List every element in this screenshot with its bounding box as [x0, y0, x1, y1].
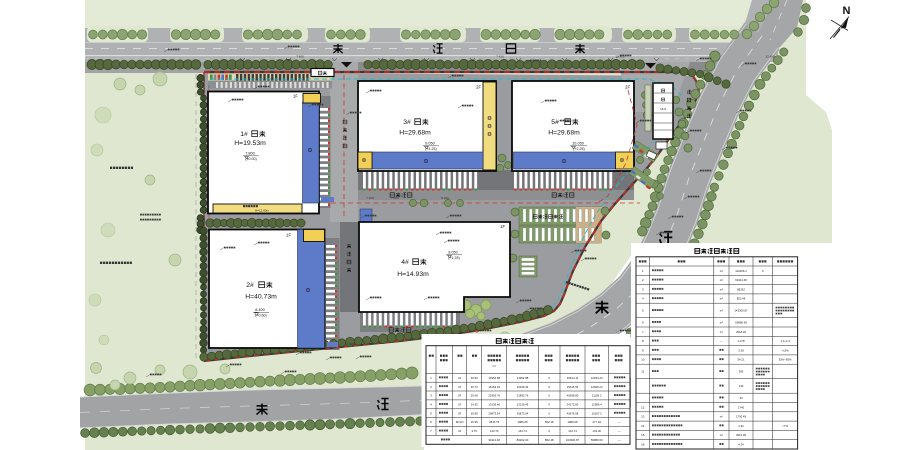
svg-text:90114.48: 90114.48: [735, 278, 747, 282]
svg-text:29.68: 29.68: [471, 394, 478, 398]
svg-text:24172.80: 24172.80: [567, 403, 579, 407]
svg-text:90114.48: 90114.48: [488, 438, 500, 442]
svg-text:6F/1D: 6F/1D: [456, 420, 464, 424]
svg-text:11155.2: 11155.2: [592, 394, 602, 398]
svg-text:16: 16: [641, 443, 645, 447]
svg-text:—: —: [618, 420, 621, 424]
svg-text:H=12.00m: H=12.00m: [255, 209, 269, 213]
svg-text:m²: m²: [720, 287, 723, 291]
svg-text:54.21: 54.21: [738, 358, 745, 362]
svg-text:143.74: 143.74: [568, 429, 577, 433]
svg-text:1.92: 1.92: [738, 424, 744, 428]
svg-text:1.0~2.3: 1.0~2.3: [780, 339, 790, 343]
svg-text:19.53: 19.53: [471, 376, 478, 380]
svg-text:9.050: 9.050: [425, 142, 435, 146]
svg-text:9.050: 9.050: [448, 251, 458, 255]
svg-text:40.73: 40.73: [471, 385, 478, 389]
svg-text:12: 12: [641, 405, 645, 409]
svg-text:59880.69: 59880.69: [591, 438, 603, 442]
svg-text:133.30: 133.30: [592, 429, 601, 433]
svg-text:H=19.53m: H=19.53m: [234, 140, 266, 147]
svg-text:H=14.93m: H=14.93m: [397, 271, 429, 278]
svg-text:14952.88: 14952.88: [517, 376, 529, 380]
svg-text:21893.76: 21893.76: [517, 394, 529, 398]
svg-text:10167.2: 10167.2: [592, 411, 603, 415]
svg-text:852.48: 852.48: [737, 297, 746, 301]
svg-text:26614.11: 26614.11: [567, 376, 579, 380]
svg-text:15: 15: [641, 433, 645, 437]
svg-text:m²: m²: [720, 433, 723, 437]
svg-text:13139.46: 13139.46: [517, 403, 529, 407]
svg-text:N: N: [843, 5, 851, 17]
svg-text:7.400: 7.400: [296, 55, 304, 59]
svg-text:1F: 1F: [458, 403, 462, 407]
svg-text:383: 383: [739, 370, 744, 374]
svg-text:12.400: 12.400: [765, 55, 775, 59]
svg-text:477.94: 477.94: [592, 420, 601, 424]
svg-text:35%~65%: 35%~65%: [779, 358, 792, 362]
svg-text:H=29.68m: H=29.68m: [548, 130, 580, 137]
svg-text:1700.49: 1700.49: [736, 415, 747, 419]
svg-text:4#: 4#: [401, 259, 409, 266]
svg-text:(+2.25): (+2.25): [573, 147, 585, 151]
svg-text:7.000: 7.000: [346, 342, 354, 346]
svg-text:1F: 1F: [500, 224, 505, 229]
svg-text:852.48: 852.48: [545, 420, 554, 424]
svg-text:—: —: [618, 438, 621, 442]
svg-text:1740: 1740: [738, 405, 745, 409]
svg-text:16.95: 16.95: [471, 420, 478, 424]
svg-text:143.74: 143.74: [518, 429, 527, 433]
svg-text:m²: m²: [720, 321, 723, 325]
svg-text:13: 13: [641, 415, 645, 419]
svg-text:12946.22: 12946.22: [591, 385, 603, 389]
svg-text:1F: 1F: [293, 94, 298, 99]
svg-text:7.100: 7.100: [366, 196, 374, 200]
svg-text:m²: m²: [720, 330, 723, 334]
svg-text:3#: 3#: [403, 119, 411, 126]
svg-text:m²: m²: [720, 309, 723, 313]
svg-text:89262: 89262: [737, 287, 745, 291]
svg-text:10.050: 10.050: [572, 142, 584, 146]
svg-text:1F: 1F: [286, 233, 291, 238]
svg-text:1989.28: 1989.28: [517, 420, 528, 424]
svg-text:40676.58: 40676.58: [567, 411, 579, 415]
svg-text:7.800: 7.800: [245, 152, 255, 156]
svg-text:14.93: 14.93: [471, 403, 478, 407]
svg-text:12934.43: 12934.43: [591, 376, 603, 380]
svg-text:7.300: 7.300: [391, 196, 399, 200]
svg-text:7.410: 7.410: [496, 55, 504, 59]
svg-text:8.200: 8.200: [441, 196, 449, 200]
svg-text:33: 33: [739, 396, 743, 400]
svg-text:21893.76: 21893.76: [488, 394, 500, 398]
svg-text:3618.26: 3618.26: [736, 330, 747, 334]
svg-text:1989.28: 1989.28: [567, 420, 578, 424]
svg-text:1F: 1F: [458, 385, 462, 389]
svg-text:5#: 5#: [551, 119, 559, 126]
svg-text:143300.87: 143300.87: [734, 309, 748, 313]
svg-text:16.9: 16.9: [660, 107, 666, 111]
svg-text:110466.3: 110466.3: [735, 269, 747, 273]
svg-text:1F: 1F: [458, 376, 462, 380]
svg-text:2F: 2F: [458, 394, 462, 398]
svg-text:16169.34: 16169.34: [488, 385, 500, 389]
svg-text:20873.54: 20873.54: [488, 411, 500, 415]
svg-text:H=29.68m: H=29.68m: [399, 130, 431, 137]
svg-text:m²: m²: [720, 297, 723, 301]
svg-text:40598.80: 40598.80: [567, 394, 579, 398]
svg-text:4.34: 4.34: [738, 443, 744, 447]
svg-text:1.478: 1.478: [738, 339, 745, 343]
svg-text:89262.00: 89262.00: [517, 438, 529, 442]
svg-text:163300.87: 163300.87: [566, 438, 580, 442]
svg-text:16169.34: 16169.34: [517, 385, 529, 389]
svg-text:2841.76: 2841.76: [489, 420, 500, 424]
svg-text:<13%: <13%: [781, 348, 789, 352]
svg-text:14952.88: 14952.88: [488, 376, 500, 380]
svg-text:m²: m²: [720, 278, 723, 282]
svg-text:8.400: 8.400: [255, 308, 265, 312]
svg-text:2F: 2F: [458, 411, 462, 415]
svg-text:(±0.00): (±0.00): [245, 157, 256, 161]
svg-text:29.68: 29.68: [471, 411, 478, 415]
svg-text:<7%: <7%: [782, 424, 788, 428]
svg-text:20873.54: 20873.54: [517, 411, 529, 415]
svg-text:29115.56: 29115.56: [567, 385, 579, 389]
svg-text:m²: m²: [492, 364, 496, 368]
svg-text:12986.4: 12986.4: [592, 403, 603, 407]
svg-text:13139.46: 13139.46: [488, 403, 500, 407]
svg-text:143.74: 143.74: [490, 429, 499, 433]
svg-text:3.75: 3.75: [471, 429, 477, 433]
svg-text:3.28: 3.28: [738, 348, 744, 352]
svg-text:—: —: [618, 429, 621, 433]
svg-text:2#: 2#: [246, 282, 254, 289]
svg-text:852.48: 852.48: [545, 438, 554, 442]
svg-text:3912.06: 3912.06: [736, 433, 747, 437]
svg-text:11: 11: [641, 370, 644, 374]
svg-text:59880.69: 59880.69: [735, 321, 747, 325]
svg-text:m²: m²: [720, 415, 723, 419]
svg-text:14: 14: [641, 424, 645, 428]
svg-text:2F: 2F: [476, 85, 481, 90]
svg-text:140: 140: [739, 384, 744, 388]
svg-text:—: —: [720, 339, 723, 343]
svg-text:10: 10: [641, 358, 645, 362]
svg-text:2F: 2F: [625, 85, 630, 90]
svg-text:H=40.73m: H=40.73m: [245, 294, 277, 301]
svg-text:1F: 1F: [458, 429, 462, 433]
svg-text:1#: 1#: [240, 131, 248, 138]
svg-text:m²: m²: [720, 269, 723, 273]
svg-text:12.400: 12.400: [615, 55, 625, 59]
